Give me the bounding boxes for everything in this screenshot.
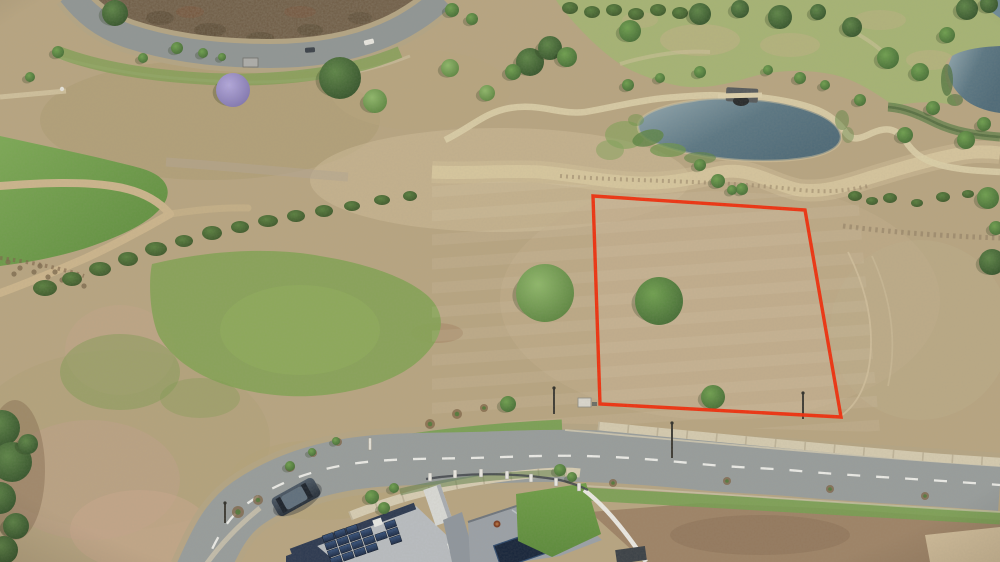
aerial-photo-stage [0,0,1000,562]
aerial-photo [0,0,1000,562]
vignette [0,0,1000,562]
